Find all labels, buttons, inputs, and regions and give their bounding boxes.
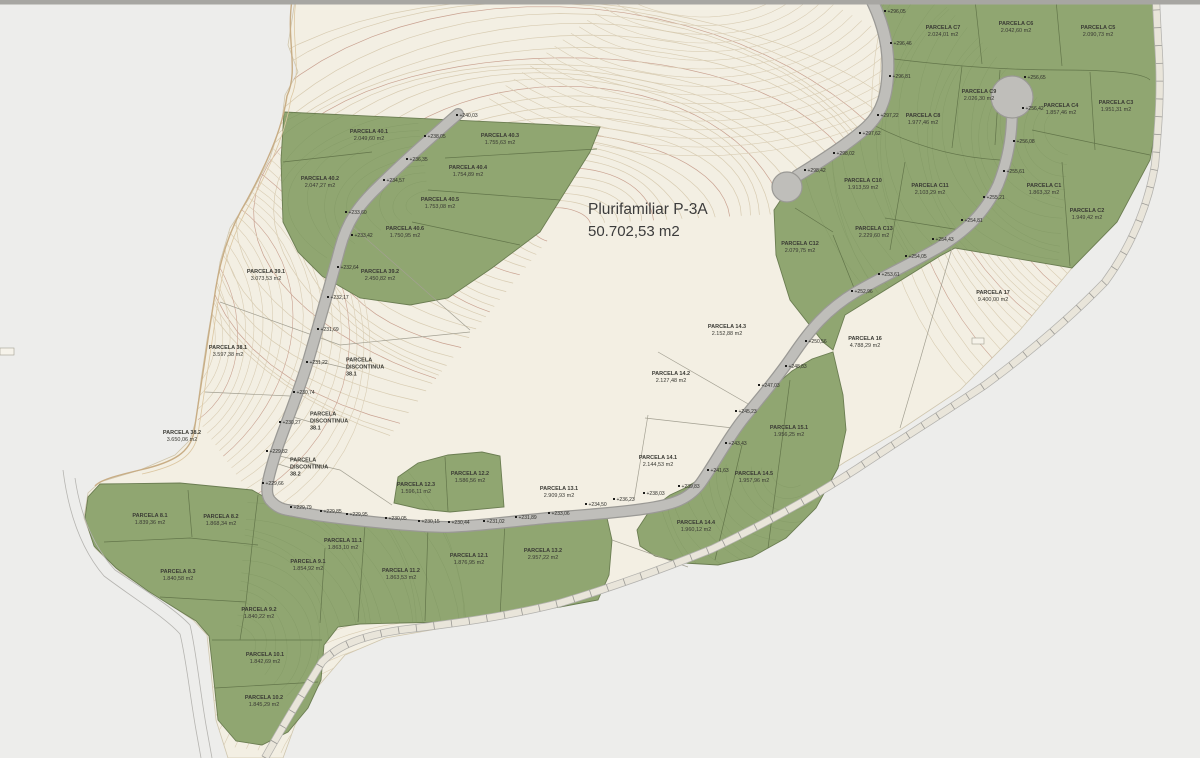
culdesac-bulb-west — [772, 172, 802, 202]
plan-drawing — [0, 0, 1200, 758]
site-plan-map: Plurifamiliar P-3A 50.702,53 m2 PARCELA … — [0, 0, 1200, 758]
culdesac-bulb-east — [991, 76, 1033, 118]
top-edge-bar — [0, 0, 1200, 5]
